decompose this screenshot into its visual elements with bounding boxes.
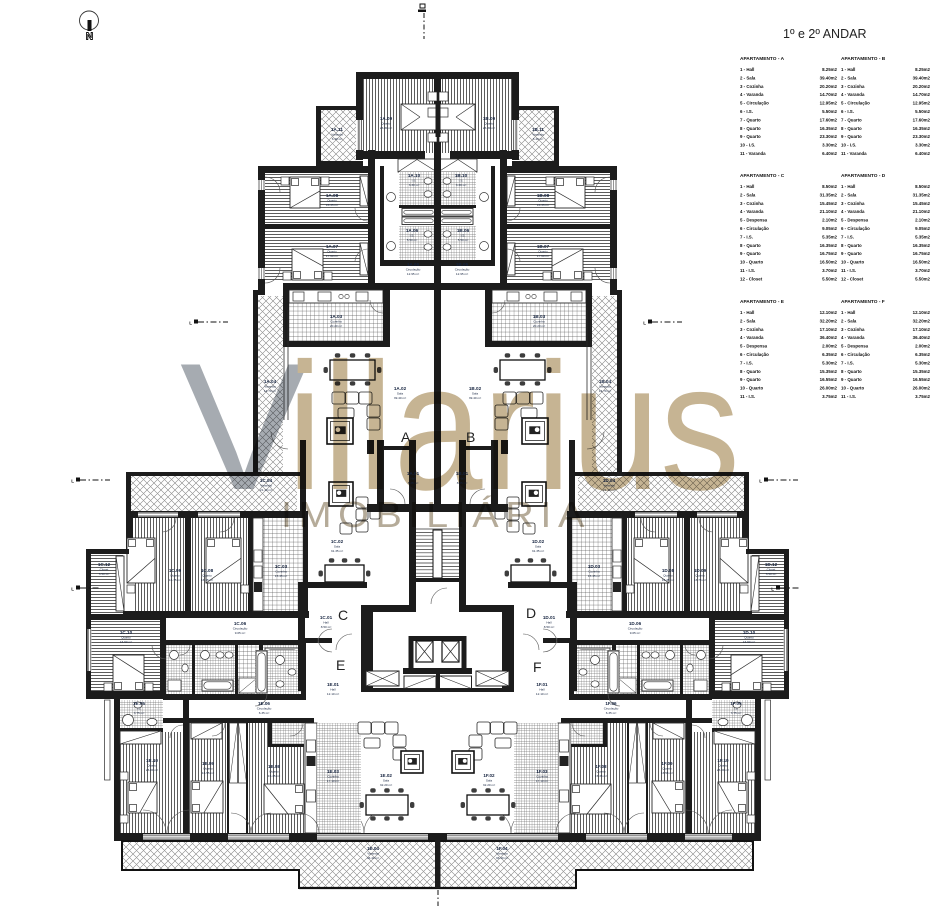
svg-text:1C.12: 1C.12 bbox=[98, 562, 111, 567]
svg-text:7 - Quarto: 7 - Quarto bbox=[740, 117, 761, 122]
svg-text:1 - Hall: 1 - Hall bbox=[740, 184, 754, 189]
svg-text:12.95 m²: 12.95 m² bbox=[456, 272, 468, 276]
svg-text:2 - Sala: 2 - Sala bbox=[740, 318, 756, 323]
svg-text:5.35m2: 5.35m2 bbox=[822, 234, 837, 239]
svg-text:16.35 m²: 16.35 m² bbox=[662, 578, 674, 582]
svg-text:1E.10: 1E.10 bbox=[146, 758, 158, 763]
svg-text:1C.03: 1C.03 bbox=[275, 564, 288, 569]
svg-text:B: B bbox=[466, 429, 475, 445]
svg-text:Sala: Sala bbox=[472, 392, 478, 396]
svg-text:36.40 m²: 36.40 m² bbox=[496, 856, 508, 860]
svg-text:1C.04: 1C.04 bbox=[260, 478, 273, 483]
svg-text:3.75 m²: 3.75 m² bbox=[731, 711, 742, 715]
svg-text:5 - Circulação: 5 - Circulação bbox=[841, 101, 870, 106]
svg-text:3 - Cozinha: 3 - Cozinha bbox=[740, 327, 764, 332]
svg-text:3 - Cozinha: 3 - Cozinha bbox=[841, 201, 865, 206]
svg-text:1F.01: 1F.01 bbox=[536, 682, 548, 687]
svg-text:1D.08: 1D.08 bbox=[662, 568, 675, 573]
svg-text:3.30m2: 3.30m2 bbox=[822, 143, 837, 148]
svg-text:15.45 m²: 15.45 m² bbox=[275, 574, 287, 578]
svg-text:L: L bbox=[771, 587, 774, 592]
svg-text:3.70m2: 3.70m2 bbox=[822, 268, 837, 273]
svg-text:15.45m2: 15.45m2 bbox=[820, 201, 838, 206]
svg-text:2 - Sala: 2 - Sala bbox=[740, 75, 756, 80]
svg-text:1D.10: 1D.10 bbox=[743, 630, 756, 635]
svg-text:6 - Circulação: 6 - Circulação bbox=[841, 352, 870, 357]
svg-text:Sala: Sala bbox=[535, 545, 541, 549]
svg-text:Cozinha: Cozinha bbox=[536, 775, 548, 779]
svg-text:6 - I.S.: 6 - I.S. bbox=[740, 109, 753, 114]
svg-text:8 - Quarto: 8 - Quarto bbox=[841, 369, 862, 374]
svg-text:E: E bbox=[336, 657, 345, 673]
svg-text:12.10 m²: 12.10 m² bbox=[327, 692, 339, 696]
svg-text:1E.02: 1E.02 bbox=[380, 773, 392, 778]
svg-text:2 - Sala: 2 - Sala bbox=[740, 192, 756, 197]
svg-text:1A.11: 1A.11 bbox=[331, 127, 343, 132]
svg-text:1B.06: 1B.06 bbox=[457, 228, 470, 233]
svg-text:I.S.: I.S. bbox=[412, 179, 417, 183]
svg-text:Cozinha: Cozinha bbox=[533, 320, 545, 324]
svg-text:15.35 m²: 15.35 m² bbox=[595, 774, 607, 778]
svg-text:16.75 m²: 16.75 m² bbox=[169, 578, 181, 582]
svg-text:17.10 m²: 17.10 m² bbox=[536, 779, 548, 783]
svg-text:1E.01: 1E.01 bbox=[327, 682, 339, 687]
svg-text:2.00m2: 2.00m2 bbox=[915, 344, 930, 349]
svg-text:Varanda: Varanda bbox=[367, 852, 379, 856]
svg-text:11 - Varanda: 11 - Varanda bbox=[841, 151, 867, 156]
svg-text:Hall: Hall bbox=[410, 477, 416, 481]
svg-text:17.10m2: 17.10m2 bbox=[913, 327, 931, 332]
svg-text:1D.03: 1D.03 bbox=[588, 564, 601, 569]
svg-text:APARTAMENTO - E: APARTAMENTO - E bbox=[740, 299, 785, 305]
svg-text:11 - I.S.: 11 - I.S. bbox=[740, 394, 755, 399]
svg-text:26.00 m²: 26.00 m² bbox=[717, 768, 729, 772]
svg-text:C: C bbox=[338, 607, 348, 623]
svg-text:2 - Sala: 2 - Sala bbox=[841, 75, 857, 80]
svg-text:Quarto: Quarto bbox=[203, 767, 213, 771]
svg-text:5 - Despensa: 5 - Despensa bbox=[841, 344, 869, 349]
svg-text:6.40 m²: 6.40 m² bbox=[533, 137, 544, 141]
svg-text:8.25m2: 8.25m2 bbox=[915, 67, 930, 72]
svg-text:11 - Varanda: 11 - Varanda bbox=[740, 151, 766, 156]
svg-text:12.95m2: 12.95m2 bbox=[820, 101, 838, 106]
svg-text:17.10m2: 17.10m2 bbox=[820, 327, 838, 332]
svg-text:Sala: Sala bbox=[334, 545, 340, 549]
svg-text:1C.10: 1C.10 bbox=[120, 630, 133, 635]
svg-text:6.35m2: 6.35m2 bbox=[915, 352, 930, 357]
svg-text:12.95 m²: 12.95 m² bbox=[407, 272, 419, 276]
svg-text:Quarto: Quarto bbox=[596, 770, 606, 774]
svg-text:9.05 m²: 9.05 m² bbox=[630, 631, 641, 635]
svg-text:Quarto: Quarto bbox=[662, 767, 672, 771]
svg-text:17.10 m²: 17.10 m² bbox=[327, 779, 339, 783]
svg-text:4 - Varanda: 4 - Varanda bbox=[841, 92, 865, 97]
svg-text:15.45 m²: 15.45 m² bbox=[588, 574, 600, 578]
svg-text:31.35 m²: 31.35 m² bbox=[331, 549, 343, 553]
svg-text:Hall: Hall bbox=[546, 621, 552, 625]
svg-text:11 - I.S.: 11 - I.S. bbox=[841, 394, 856, 399]
svg-text:Quarto: Quarto bbox=[538, 250, 548, 254]
svg-text:16.35m2: 16.35m2 bbox=[820, 126, 838, 131]
svg-text:14.70 m²: 14.70 m² bbox=[599, 389, 611, 393]
svg-text:1E.04: 1E.04 bbox=[367, 846, 379, 851]
svg-text:5.50m2: 5.50m2 bbox=[915, 276, 930, 281]
svg-text:Quarto: Quarto bbox=[663, 574, 673, 578]
svg-text:Sala: Sala bbox=[397, 392, 403, 396]
svg-text:6.40 m²: 6.40 m² bbox=[332, 137, 343, 141]
svg-text:1 - Hall: 1 - Hall bbox=[740, 67, 754, 72]
svg-text:Quarto: Quarto bbox=[538, 199, 548, 203]
svg-text:32.20m2: 32.20m2 bbox=[820, 318, 838, 323]
svg-text:6 - Circulação: 6 - Circulação bbox=[740, 226, 769, 231]
svg-text:1F.09: 1F.09 bbox=[661, 761, 673, 766]
svg-text:APARTAMENTO - C: APARTAMENTO - C bbox=[740, 173, 785, 179]
svg-text:36.40 m²: 36.40 m² bbox=[367, 856, 379, 860]
svg-text:3 - Cozinha: 3 - Cozinha bbox=[740, 201, 764, 206]
svg-text:20.20 m²: 20.20 m² bbox=[533, 324, 545, 328]
svg-text:21.10 m²: 21.10 m² bbox=[260, 488, 272, 492]
svg-text:15.35m2: 15.35m2 bbox=[913, 369, 931, 374]
svg-text:9.05m2: 9.05m2 bbox=[822, 226, 837, 231]
svg-text:16.35m2: 16.35m2 bbox=[913, 243, 931, 248]
svg-text:16.35 m²: 16.35 m² bbox=[537, 203, 549, 207]
svg-text:16.55m2: 16.55m2 bbox=[820, 377, 838, 382]
svg-text:10 - Quarto: 10 - Quarto bbox=[841, 386, 864, 391]
svg-text:1 - Hall: 1 - Hall bbox=[841, 184, 855, 189]
svg-text:15.35m2: 15.35m2 bbox=[820, 369, 838, 374]
svg-text:1C.02: 1C.02 bbox=[331, 539, 344, 544]
svg-text:23.30 m²: 23.30 m² bbox=[483, 126, 495, 130]
svg-text:Varanda: Varanda bbox=[603, 484, 615, 488]
svg-text:Circulação: Circulação bbox=[233, 627, 248, 631]
svg-text:4 - Varanda: 4 - Varanda bbox=[841, 209, 865, 214]
svg-text:39.40 m²: 39.40 m² bbox=[469, 396, 481, 400]
svg-text:F: F bbox=[533, 659, 542, 675]
svg-text:Varanda: Varanda bbox=[599, 385, 611, 389]
svg-text:15.45m2: 15.45m2 bbox=[913, 201, 931, 206]
svg-text:7 - I.S.: 7 - I.S. bbox=[841, 234, 854, 239]
svg-text:Cozinha: Cozinha bbox=[588, 570, 600, 574]
svg-text:11 - I.S.: 11 - I.S. bbox=[740, 268, 755, 273]
svg-text:1F.03: 1F.03 bbox=[536, 769, 548, 774]
svg-text:7 - I.S.: 7 - I.S. bbox=[740, 234, 753, 239]
svg-text:36.40m2: 36.40m2 bbox=[820, 335, 838, 340]
svg-text:1C.01: 1C.01 bbox=[320, 615, 333, 620]
svg-text:14.70 m²: 14.70 m² bbox=[264, 389, 276, 393]
svg-text:12.10 m²: 12.10 m² bbox=[536, 692, 548, 696]
svg-text:APARTAMENTO - A: APARTAMENTO - A bbox=[740, 56, 785, 62]
svg-text:1A.10: 1A.10 bbox=[408, 173, 421, 178]
svg-text:10 - Quarto: 10 - Quarto bbox=[841, 260, 864, 265]
svg-text:Cozinha: Cozinha bbox=[327, 775, 339, 779]
svg-text:Quarto: Quarto bbox=[484, 122, 494, 126]
svg-text:8 - Quarto: 8 - Quarto bbox=[740, 369, 761, 374]
svg-text:3 - Cozinha: 3 - Cozinha bbox=[841, 84, 865, 89]
svg-text:17.60 m²: 17.60 m² bbox=[537, 254, 549, 258]
svg-text:1B.03: 1B.03 bbox=[533, 314, 546, 319]
svg-text:16.75m2: 16.75m2 bbox=[913, 251, 931, 256]
svg-text:12.10m2: 12.10m2 bbox=[913, 310, 931, 315]
svg-text:1A.06: 1A.06 bbox=[406, 228, 419, 233]
svg-text:5.50 m²: 5.50 m² bbox=[99, 572, 110, 576]
svg-text:4 - Varanda: 4 - Varanda bbox=[740, 209, 764, 214]
svg-text:31.35m2: 31.35m2 bbox=[820, 192, 838, 197]
svg-text:Quarto: Quarto bbox=[718, 764, 728, 768]
svg-text:16.35 m²: 16.35 m² bbox=[201, 578, 213, 582]
svg-text:1B.02: 1B.02 bbox=[469, 386, 482, 391]
svg-text:10 - Quarto: 10 - Quarto bbox=[740, 386, 763, 391]
svg-text:2 - Sala: 2 - Sala bbox=[841, 192, 857, 197]
svg-text:9 - Quarto: 9 - Quarto bbox=[740, 134, 761, 139]
svg-text:1E.03: 1E.03 bbox=[327, 769, 339, 774]
svg-text:Quarto: Quarto bbox=[327, 250, 337, 254]
svg-text:1E.09: 1E.09 bbox=[202, 761, 214, 766]
svg-text:1A.03: 1A.03 bbox=[330, 314, 343, 319]
svg-text:Varanda: Varanda bbox=[496, 852, 508, 856]
svg-text:20.20m2: 20.20m2 bbox=[913, 84, 931, 89]
svg-text:3.75m2: 3.75m2 bbox=[915, 394, 930, 399]
svg-text:16.75 m²: 16.75 m² bbox=[694, 578, 706, 582]
svg-text:8.25 m²: 8.25 m² bbox=[408, 481, 419, 485]
svg-text:1A.09: 1A.09 bbox=[380, 116, 393, 121]
svg-text:1A.07: 1A.07 bbox=[326, 244, 339, 249]
svg-text:16.50 m²: 16.50 m² bbox=[120, 640, 132, 644]
svg-text:1 - Hall: 1 - Hall bbox=[740, 310, 754, 315]
svg-text:1A.01: 1A.01 bbox=[407, 471, 420, 476]
svg-text:1B.04: 1B.04 bbox=[599, 379, 612, 384]
svg-text:14.70m2: 14.70m2 bbox=[913, 92, 931, 97]
svg-text:Circulação: Circulação bbox=[455, 268, 470, 272]
svg-text:23.30 m²: 23.30 m² bbox=[380, 126, 392, 130]
svg-text:2.10m2: 2.10m2 bbox=[822, 218, 837, 223]
svg-text:9.05 m²: 9.05 m² bbox=[235, 631, 246, 635]
svg-text:16.35m2: 16.35m2 bbox=[820, 243, 838, 248]
svg-text:Circulação: Circulação bbox=[628, 627, 643, 631]
svg-text:10 - I.S.: 10 - I.S. bbox=[740, 143, 755, 148]
svg-text:9 - Quarto: 9 - Quarto bbox=[841, 134, 862, 139]
svg-text:16.50 m²: 16.50 m² bbox=[743, 640, 755, 644]
svg-text:1D.02: 1D.02 bbox=[532, 539, 545, 544]
svg-text:I.S.: I.S. bbox=[459, 179, 464, 183]
svg-text:1F.05: 1F.05 bbox=[730, 701, 742, 706]
svg-text:16.50m2: 16.50m2 bbox=[913, 260, 931, 265]
svg-text:15.35 m²: 15.35 m² bbox=[268, 774, 280, 778]
svg-text:APARTAMENTO - D: APARTAMENTO - D bbox=[841, 173, 886, 179]
svg-text:16.55 m²: 16.55 m² bbox=[661, 771, 673, 775]
svg-text:1 - Hall: 1 - Hall bbox=[841, 310, 855, 315]
svg-text:1F.04: 1F.04 bbox=[496, 846, 508, 851]
svg-text:L: L bbox=[71, 479, 74, 484]
svg-text:9 - Quarto: 9 - Quarto bbox=[740, 251, 761, 256]
svg-text:8.25 m²: 8.25 m² bbox=[457, 481, 468, 485]
svg-text:20.20 m²: 20.20 m² bbox=[330, 324, 342, 328]
svg-text:7 - I.S.: 7 - I.S. bbox=[740, 360, 753, 365]
svg-text:4 - Varanda: 4 - Varanda bbox=[740, 92, 764, 97]
svg-text:9.05m2: 9.05m2 bbox=[915, 226, 930, 231]
svg-text:36.40m2: 36.40m2 bbox=[913, 335, 931, 340]
svg-text:Quarto: Quarto bbox=[269, 770, 279, 774]
svg-text:8 - Quarto: 8 - Quarto bbox=[841, 243, 862, 248]
svg-text:5 - Despensa: 5 - Despensa bbox=[740, 344, 768, 349]
svg-text:Quarto: Quarto bbox=[121, 636, 131, 640]
svg-text:2 - Sala: 2 - Sala bbox=[841, 318, 857, 323]
svg-text:1E.05: 1E.05 bbox=[133, 701, 145, 706]
svg-text:1D.12: 1D.12 bbox=[765, 562, 778, 567]
svg-text:8 - Quarto: 8 - Quarto bbox=[841, 126, 862, 131]
svg-text:L: L bbox=[71, 587, 74, 592]
svg-text:Circulação: Circulação bbox=[257, 707, 272, 711]
svg-text:23.30m2: 23.30m2 bbox=[820, 134, 838, 139]
svg-text:12 - Closet: 12 - Closet bbox=[740, 276, 763, 281]
svg-text:Closet: Closet bbox=[100, 568, 109, 572]
svg-text:I.S.: I.S. bbox=[461, 234, 466, 238]
svg-text:1C.06: 1C.06 bbox=[234, 621, 247, 626]
svg-text:6.35m2: 6.35m2 bbox=[822, 352, 837, 357]
svg-text:Cozinha: Cozinha bbox=[275, 570, 287, 574]
svg-text:I.S.: I.S. bbox=[137, 707, 142, 711]
svg-text:3.75 m²: 3.75 m² bbox=[134, 711, 145, 715]
svg-text:L: L bbox=[189, 321, 192, 326]
svg-text:1F.06: 1F.06 bbox=[605, 701, 617, 706]
svg-text:3.30m2: 3.30m2 bbox=[915, 143, 930, 148]
svg-text:N: N bbox=[86, 32, 93, 43]
svg-text:8.50m2: 8.50m2 bbox=[822, 184, 837, 189]
svg-text:6.40m2: 6.40m2 bbox=[822, 151, 837, 156]
svg-text:APARTAMENTO - B: APARTAMENTO - B bbox=[841, 56, 886, 62]
svg-text:6.40m2: 6.40m2 bbox=[915, 151, 930, 156]
svg-text:20.20m2: 20.20m2 bbox=[820, 84, 838, 89]
svg-text:16.35m2: 16.35m2 bbox=[913, 126, 931, 131]
svg-text:Quarto: Quarto bbox=[147, 764, 157, 768]
svg-text:Hall: Hall bbox=[539, 688, 545, 692]
svg-text:39.40 m²: 39.40 m² bbox=[394, 396, 406, 400]
svg-text:5.50m2: 5.50m2 bbox=[822, 276, 837, 281]
svg-text:L: L bbox=[759, 479, 762, 484]
svg-text:31.35m2: 31.35m2 bbox=[913, 192, 931, 197]
svg-text:5.35m2: 5.35m2 bbox=[915, 234, 930, 239]
svg-text:9 - Quarto: 9 - Quarto bbox=[740, 377, 761, 382]
svg-text:32.20 m²: 32.20 m² bbox=[380, 783, 392, 787]
svg-text:23.30m2: 23.30m2 bbox=[913, 134, 931, 139]
svg-text:1A.04: 1A.04 bbox=[264, 379, 277, 384]
svg-text:1B.07: 1B.07 bbox=[537, 244, 550, 249]
svg-text:16.55 m²: 16.55 m² bbox=[202, 771, 214, 775]
svg-text:Varanda: Varanda bbox=[532, 133, 544, 137]
svg-text:6.35 m²: 6.35 m² bbox=[606, 711, 617, 715]
svg-text:5.50 m²: 5.50 m² bbox=[407, 238, 418, 242]
svg-text:1A.08: 1A.08 bbox=[326, 193, 339, 198]
svg-text:6 - I.S.: 6 - I.S. bbox=[841, 109, 854, 114]
svg-text:I.S.: I.S. bbox=[410, 234, 415, 238]
svg-text:11 - I.S.: 11 - I.S. bbox=[841, 268, 856, 273]
svg-text:4 - Varanda: 4 - Varanda bbox=[841, 335, 865, 340]
svg-text:3.70m2: 3.70m2 bbox=[915, 268, 930, 273]
svg-text:5.50m2: 5.50m2 bbox=[822, 109, 837, 114]
svg-text:Quarto: Quarto bbox=[170, 574, 180, 578]
svg-text:I.S.: I.S. bbox=[734, 707, 739, 711]
svg-text:1B.10: 1B.10 bbox=[455, 173, 468, 178]
svg-text:1D.06: 1D.06 bbox=[629, 621, 642, 626]
svg-text:5.50 m²: 5.50 m² bbox=[458, 238, 469, 242]
svg-text:16.35 m²: 16.35 m² bbox=[326, 203, 338, 207]
svg-text:1F.02: 1F.02 bbox=[483, 773, 495, 778]
svg-text:Varanda: Varanda bbox=[260, 484, 272, 488]
svg-text:16.55m2: 16.55m2 bbox=[913, 377, 931, 382]
svg-text:1º e 2º ANDAR: 1º e 2º ANDAR bbox=[783, 27, 866, 41]
svg-text:5.50m2: 5.50m2 bbox=[915, 109, 930, 114]
svg-text:5.30m2: 5.30m2 bbox=[915, 360, 930, 365]
svg-text:7 - I.S.: 7 - I.S. bbox=[841, 360, 854, 365]
svg-text:Cozinha: Cozinha bbox=[330, 320, 342, 324]
svg-text:Closet: Closet bbox=[767, 568, 776, 572]
svg-text:L: L bbox=[643, 321, 646, 326]
svg-text:Varanda: Varanda bbox=[264, 385, 276, 389]
svg-text:Quarto: Quarto bbox=[327, 199, 337, 203]
svg-text:1D.04: 1D.04 bbox=[603, 478, 616, 483]
svg-text:2.00m2: 2.00m2 bbox=[822, 344, 837, 349]
svg-text:5 - Despensa: 5 - Despensa bbox=[740, 218, 768, 223]
svg-text:16.75m2: 16.75m2 bbox=[820, 251, 838, 256]
svg-text:1F.10: 1F.10 bbox=[717, 758, 729, 763]
svg-text:26.00 m²: 26.00 m² bbox=[146, 768, 158, 772]
svg-text:26.00m2: 26.00m2 bbox=[820, 386, 838, 391]
svg-text:Sala: Sala bbox=[383, 779, 389, 783]
svg-text:Hall: Hall bbox=[459, 477, 465, 481]
svg-text:12.95m2: 12.95m2 bbox=[913, 101, 931, 106]
svg-text:Quarto: Quarto bbox=[202, 574, 212, 578]
svg-text:1B.01: 1B.01 bbox=[456, 471, 469, 476]
svg-text:10 - I.S.: 10 - I.S. bbox=[841, 143, 856, 148]
svg-text:APARTAMENTO - F: APARTAMENTO - F bbox=[841, 299, 885, 305]
svg-text:Sala: Sala bbox=[486, 779, 492, 783]
svg-text:3 - Cozinha: 3 - Cozinha bbox=[841, 327, 865, 332]
svg-text:6 - Circulação: 6 - Circulação bbox=[841, 226, 870, 231]
svg-text:1C.09: 1C.09 bbox=[169, 568, 182, 573]
svg-text:39.40m2: 39.40m2 bbox=[913, 75, 931, 80]
svg-text:10 - Quarto: 10 - Quarto bbox=[740, 260, 763, 265]
svg-text:17.60m2: 17.60m2 bbox=[820, 117, 838, 122]
svg-text:3.30 m²: 3.30 m² bbox=[409, 183, 420, 187]
svg-text:16.50m2: 16.50m2 bbox=[820, 260, 838, 265]
svg-text:Hall: Hall bbox=[323, 621, 329, 625]
svg-text:3.30 m²: 3.30 m² bbox=[456, 183, 467, 187]
svg-text:1E.06: 1E.06 bbox=[258, 701, 270, 706]
svg-text:1B.05: 1B.05 bbox=[456, 262, 469, 267]
svg-text:5 - Despensa: 5 - Despensa bbox=[841, 218, 869, 223]
svg-text:Circulação: Circulação bbox=[604, 707, 619, 711]
svg-text:2.10m2: 2.10m2 bbox=[915, 218, 930, 223]
svg-text:8 - Quarto: 8 - Quarto bbox=[740, 126, 761, 131]
svg-text:8 - Quarto: 8 - Quarto bbox=[740, 243, 761, 248]
svg-text:A: A bbox=[401, 429, 411, 445]
svg-text:31.35 m²: 31.35 m² bbox=[532, 549, 544, 553]
svg-text:5 - Circulação: 5 - Circulação bbox=[740, 101, 769, 106]
svg-text:IMOBILIÁRIA: IMOBILIÁRIA bbox=[281, 494, 591, 535]
svg-text:17.60 m²: 17.60 m² bbox=[326, 254, 338, 258]
svg-text:6.35 m²: 6.35 m² bbox=[259, 711, 270, 715]
svg-text:21.10m2: 21.10m2 bbox=[820, 209, 838, 214]
svg-text:1A.02: 1A.02 bbox=[394, 386, 407, 391]
svg-text:9 - Quarto: 9 - Quarto bbox=[841, 377, 862, 382]
svg-text:8.50 m²: 8.50 m² bbox=[544, 625, 555, 629]
svg-text:1A.05: 1A.05 bbox=[407, 262, 420, 267]
svg-text:12.10m2: 12.10m2 bbox=[820, 310, 838, 315]
svg-text:12 - Closet: 12 - Closet bbox=[841, 276, 864, 281]
svg-text:26.00m2: 26.00m2 bbox=[913, 386, 931, 391]
svg-text:Hall: Hall bbox=[330, 688, 336, 692]
svg-text:Quarto: Quarto bbox=[381, 122, 391, 126]
svg-text:1B.08: 1B.08 bbox=[537, 193, 550, 198]
